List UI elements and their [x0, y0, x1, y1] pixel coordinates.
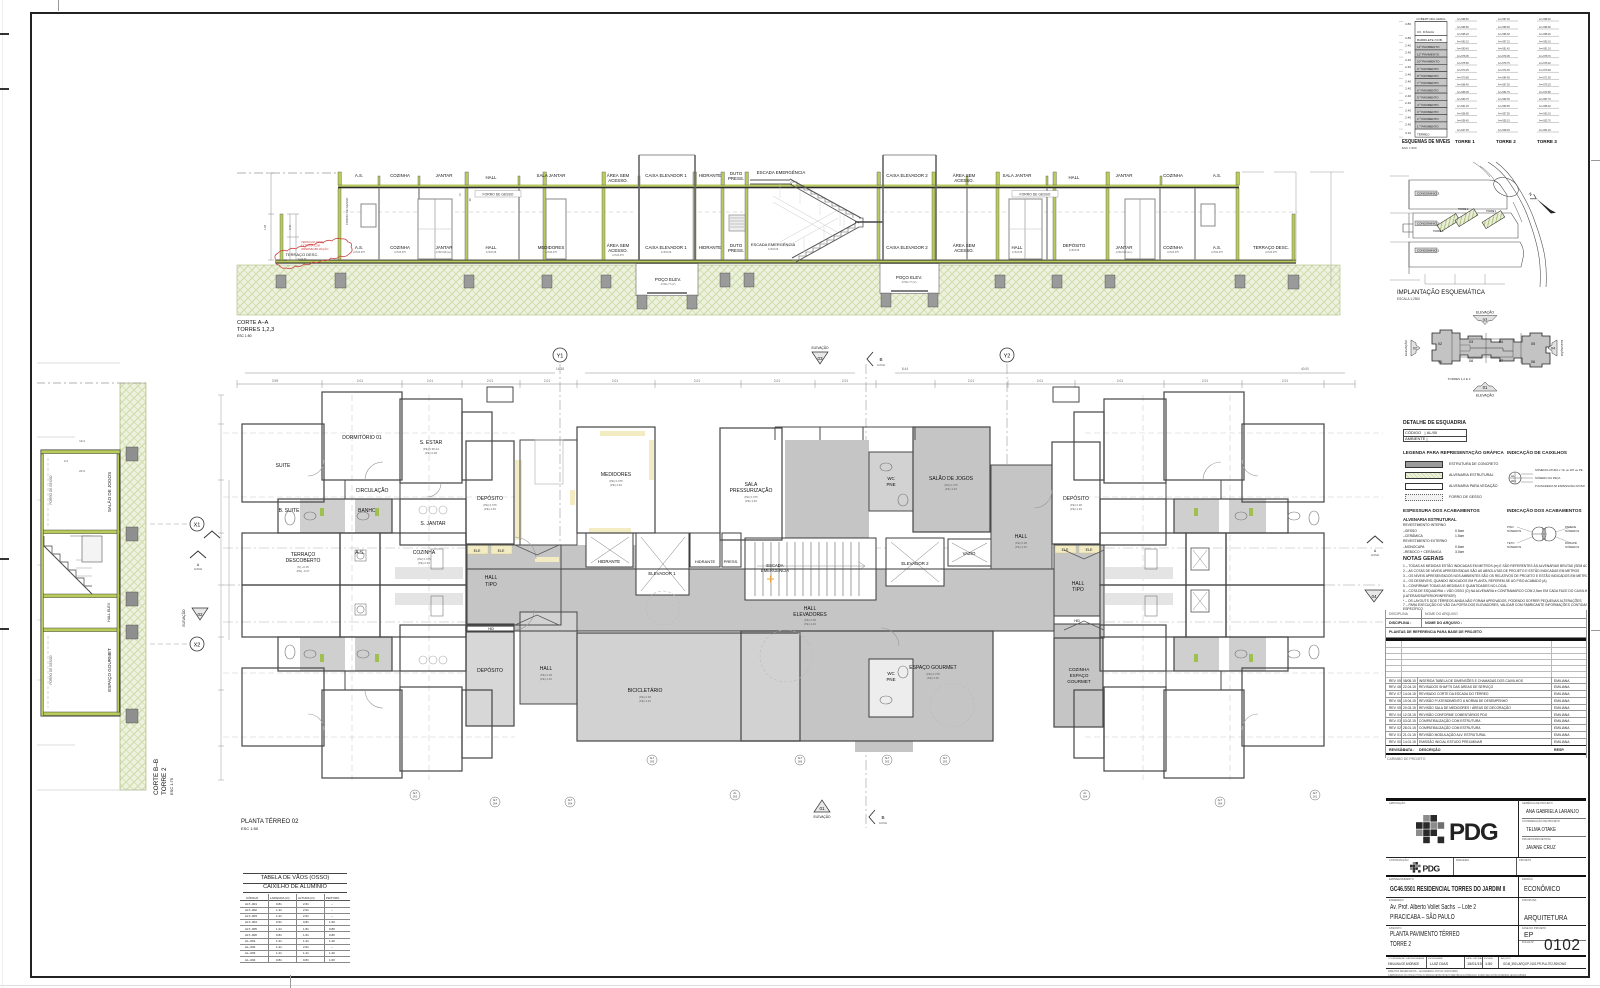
svg-text:DORMITÓRIO 01: DORMITÓRIO 01 — [342, 434, 382, 441]
svg-text:1.98: 1.98 — [263, 224, 267, 230]
svg-text:ACESSO.: ACESSO. — [608, 248, 628, 253]
svg-text:COZINHA: COZINHA — [413, 550, 436, 556]
svg-text:ACIMA: ACIMA — [1371, 553, 1379, 557]
svg-text:ESPAÇO GOURMET: ESPAÇO GOURMET — [107, 648, 112, 692]
svg-text:COZINHA: COZINHA — [1069, 667, 1091, 672]
svg-text:A=34.60: A=34.60 — [298, 258, 308, 261]
svg-text:AL: AL — [1511, 474, 1515, 478]
svg-text:A=+591.45: A=+591.45 — [1498, 48, 1510, 51]
svg-text:A=+561.25: A=+561.25 — [1457, 105, 1469, 108]
svg-text:TORRE 2: TORRE 2 — [1458, 208, 1469, 211]
svg-text:006: 006 — [798, 759, 803, 763]
svg-text:A=+593.10: A=+593.10 — [1539, 40, 1551, 43]
svg-text:02: 02 — [1438, 342, 1442, 346]
svg-text:A=+557.55: A=+557.55 — [1498, 112, 1510, 115]
svg-text:01: 01 — [1483, 385, 1488, 390]
svg-text:A=+566.05: A=+566.05 — [1457, 91, 1469, 94]
svg-text:6 º PAVIMENTO: 6 º PAVIMENTO — [1417, 88, 1439, 92]
svg-text:03: 03 — [1483, 318, 1488, 323]
svg-text:COZINHA: COZINHA — [390, 245, 410, 250]
svg-text:.38: .38 — [468, 198, 472, 202]
svg-text:5 º PAVIMENTO: 5 º PAVIMENTO — [1417, 96, 1439, 100]
svg-text:04: 04 — [1499, 340, 1503, 344]
svg-text:S. ESTAR: S. ESTAR — [420, 440, 443, 446]
svg-text:MEDIDORES: MEDIDORES — [601, 472, 632, 478]
svg-text:TORRE 2: TORRE 2 — [1496, 139, 1516, 144]
svg-text:A=543.075: A=543.075 — [612, 254, 624, 257]
svg-text:CX. D'ÁGUA: CX. D'ÁGUA — [1417, 30, 1434, 34]
svg-text:ELEVAÇÃO: ELEVAÇÃO — [814, 814, 831, 819]
svg-text:2.01: 2.01 — [1202, 379, 1208, 383]
svg-text:ACESSO.: ACESSO. — [954, 248, 974, 253]
svg-text:AL: AL — [733, 791, 737, 795]
svg-text:NÚMEROS: NÚMEROS — [1507, 528, 1521, 533]
svg-text:HALL ELEV.: HALL ELEV. — [107, 602, 111, 622]
svg-text:COZINHA: COZINHA — [390, 173, 410, 178]
svg-text:GOURMET: GOURMET — [1067, 679, 1091, 684]
svg-text:PLANTA TÉRREO 02: PLANTA TÉRREO 02 — [241, 818, 299, 825]
svg-text:PRESS.: PRESS. — [724, 559, 739, 564]
svg-text:A=+567.70: A=+567.70 — [1539, 98, 1551, 101]
svg-text:A=+595.30: A=+595.30 — [1498, 33, 1510, 36]
svg-text:A=+584.95: A=+584.95 — [1498, 76, 1510, 79]
svg-text:001: 001 — [1313, 794, 1318, 798]
svg-text:A=541.77 (a*): A=541.77 (a*) — [661, 283, 676, 286]
svg-text:DEPÓSITO: DEPÓSITO — [1063, 243, 1086, 248]
svg-text:001: 001 — [1511, 479, 1516, 483]
svg-text:ACIMA: ACIMA — [879, 821, 887, 825]
svg-text:2.40: 2.40 — [1405, 65, 1411, 69]
svg-text:TORRES 1,2,3: TORRES 1,2,3 — [237, 327, 274, 333]
svg-text:ESPAÇO GOURMET: ESPAÇO GOURMET — [909, 665, 956, 671]
svg-text:04: 04 — [1371, 594, 1377, 599]
svg-text:ELEVAÇÃO: ELEVAÇÃO — [1403, 339, 1408, 356]
svg-text:A=+564.75: A=+564.75 — [1498, 91, 1510, 94]
svg-text:0.2: 0.2 — [64, 459, 69, 463]
svg-text:A=+576.75: A=+576.75 — [1498, 62, 1510, 65]
svg-text:NÚMEROS: NÚMEROS — [1565, 528, 1579, 533]
svg-text:A.S.: A.S. — [1213, 173, 1221, 178]
svg-text:JANTAR: JANTAR — [436, 173, 453, 178]
svg-text:A=+562.35: A=+562.35 — [1498, 98, 1510, 101]
svg-text:CIRCULAÇÃO: CIRCULAÇÃO — [356, 487, 389, 494]
svg-text:ESC 1:75: ESC 1:75 — [169, 777, 174, 795]
svg-text:A=+595.20: A=+595.20 — [1539, 33, 1551, 36]
svg-text:08: 08 — [1469, 359, 1473, 363]
svg-text:ELE: ELE — [474, 549, 481, 553]
svg-text:A=+591.10: A=+591.10 — [1539, 48, 1551, 51]
svg-text:004: 004 — [493, 801, 498, 805]
svg-text:(PE) 4.46: (PE) 4.46 — [639, 699, 651, 703]
svg-text:A.S.: A.S. — [355, 173, 363, 178]
svg-text:A: A — [197, 563, 200, 567]
svg-text:(PE) 4.46: (PE) 4.46 — [804, 622, 816, 626]
svg-text:A=+596.80: A=+596.80 — [1457, 26, 1469, 29]
svg-text:003: 003 — [733, 794, 738, 798]
svg-text:001: 001 — [413, 794, 418, 798]
svg-text:A=+567.35: A=+567.35 — [1498, 84, 1510, 87]
svg-text:HIDRANTE: HIDRANTE — [699, 245, 722, 250]
svg-text:3 º PAVIMENTO: 3 º PAVIMENTO — [1417, 110, 1439, 114]
svg-text:ELEVAÇÃO: ELEVAÇÃO — [181, 609, 186, 626]
svg-text:EMERGENCIA: EMERGENCIA — [761, 568, 789, 573]
svg-text:1 º PAVIMENTO: 1 º PAVIMENTO — [1417, 124, 1439, 128]
svg-text:HID: HID — [1074, 619, 1080, 623]
svg-text:HALL: HALL — [485, 575, 498, 581]
svg-text:(PE) 4.46: (PE) 4.46 — [1015, 545, 1027, 549]
svg-text:TORRE 3: TORRE 3 — [1433, 230, 1444, 233]
svg-text:PRESSURIZAÇÃO: PRESSURIZAÇÃO — [730, 487, 773, 494]
svg-text:POÇO ELEV.: POÇO ELEV. — [655, 277, 681, 282]
svg-text:ACIMA: ACIMA — [194, 567, 202, 571]
svg-text:ALT: ALT — [885, 756, 890, 760]
svg-text:19.4: 19.4 — [79, 439, 85, 443]
svg-text:A=+597.30: A=+597.30 — [1498, 18, 1510, 21]
svg-text:2.01: 2.01 — [357, 379, 363, 383]
svg-text:DEPÓSITO: DEPÓSITO — [1063, 495, 1089, 502]
svg-text:2.40: 2.40 — [1405, 72, 1411, 76]
svg-text:A=541.77 (a*): A=541.77 (a*) — [902, 281, 917, 284]
svg-text:07: 07 — [1499, 359, 1503, 363]
svg-text:X1: X1 — [194, 523, 201, 529]
svg-text:HALL: HALL — [486, 245, 498, 250]
svg-text:A: A — [1374, 549, 1377, 553]
svg-text:DESCOBERTO: DESCOBERTO — [286, 558, 321, 564]
svg-text:COBERTURA GERAL: COBERTURA GERAL — [1416, 17, 1446, 21]
svg-text:CORTE A–A: CORTE A–A — [237, 320, 269, 326]
svg-text:PNE: PNE — [886, 482, 895, 487]
svg-text:MEDIDORES: MEDIDORES — [538, 245, 565, 250]
svg-text:P/JANADEIRA 50 ESPESSURA DO B: P/JANADEIRA 50 ESPESSURA DO BATENTE — [1535, 484, 1585, 488]
svg-text:ESPAÇO: ESPAÇO — [1070, 673, 1089, 678]
svg-text:10º PAVIMENTO: 10º PAVIMENTO — [1417, 60, 1440, 64]
svg-text:TÉRREO: TÉRREO — [1417, 131, 1430, 136]
svg-text:A=543.075: A=543.075 — [353, 251, 365, 254]
svg-text:02: 02 — [197, 612, 203, 617]
svg-text:EXTERNA COM: EXTERNA COM — [301, 243, 320, 247]
svg-text:A=+571.50: A=+571.50 — [1539, 76, 1551, 79]
svg-text:04: 04 — [1551, 347, 1555, 351]
svg-text:WC: WC — [887, 476, 894, 481]
svg-text:A=+579.05: A=+579.05 — [1498, 55, 1510, 58]
svg-text:JANTAR: JANTAR — [436, 245, 453, 250]
svg-text:BICICLETÁRIO: BICICLETÁRIO — [628, 687, 663, 694]
svg-text:A=543.08 (a.p.): A=543.08 (a.p.) — [436, 251, 453, 254]
svg-text:2.40: 2.40 — [1405, 80, 1411, 84]
svg-text:TIPO: TIPO — [1072, 587, 1084, 593]
svg-text:A=+598.60: A=+598.60 — [1457, 18, 1469, 21]
svg-text:CAIXA ELEVADOR 2: CAIXA ELEVADOR 2 — [886, 245, 928, 250]
svg-text:(PE) 4.46: (PE) 4.46 — [945, 487, 957, 491]
svg-text:A=+597.15: A=+597.15 — [1498, 40, 1510, 43]
svg-text:2.01: 2.01 — [1117, 379, 1123, 383]
svg-text:A=+548.45: A=+548.45 — [1498, 129, 1510, 132]
svg-text:SALÃO DE JOGOS: SALÃO DE JOGOS — [929, 475, 974, 482]
svg-text:HIDRANTE: HIDRANTE — [695, 559, 716, 564]
svg-text:CONDOMINIO 2: CONDOMINIO 2 — [1417, 222, 1440, 226]
svg-text:A=543.075: A=543.075 — [1167, 251, 1179, 254]
svg-text:A=+578.70: A=+578.70 — [1539, 55, 1551, 58]
svg-text:A=+556.45: A=+556.45 — [1457, 120, 1469, 123]
svg-text:ACIMA: ACIMA — [877, 363, 885, 367]
svg-text:3.99: 3.99 — [272, 379, 278, 383]
svg-text:X2: X2 — [194, 643, 201, 649]
svg-text:BARRILETE /COB.: BARRILETE /COB. — [1417, 38, 1443, 42]
svg-text:A=+563.75: A=+563.75 — [1457, 98, 1469, 101]
svg-text:PNE: PNE — [886, 677, 895, 682]
svg-text:A=543.08: A=543.08 — [1069, 249, 1080, 252]
svg-text:11º PAVIMENTO: 11º PAVIMENTO — [1417, 52, 1440, 56]
svg-text:WC: WC — [887, 671, 894, 676]
svg-text:HALL: HALL — [1069, 175, 1081, 180]
svg-text:DEPÓSITO: DEPÓSITO — [477, 495, 503, 502]
svg-text:(PE) 4.46: (PE) 4.46 — [610, 483, 622, 487]
svg-text:03: 03 — [817, 356, 823, 361]
svg-text:SUITE: SUITE — [276, 463, 291, 469]
svg-text:2 º PAVIMENTO: 2 º PAVIMENTO — [1417, 117, 1439, 121]
svg-text:NOMENCLATURA v. NL ou WX ou P: NOMENCLATURA v. NL ou WX ou PE — [1535, 468, 1583, 472]
svg-text:SALA JANTAR: SALA JANTAR — [537, 173, 566, 178]
svg-text:B: B — [879, 357, 882, 362]
svg-text:A=+572.80: A=+572.80 — [1539, 91, 1551, 94]
svg-text:A=543.075: A=543.075 — [1211, 251, 1223, 254]
svg-text:(PE) 4.46: (PE) 4.46 — [540, 677, 552, 681]
svg-text:2.01: 2.01 — [427, 379, 433, 383]
svg-text:FORRO DE GESSO: FORRO DE GESSO — [49, 475, 53, 505]
svg-text:2.01: 2.01 — [1037, 379, 1043, 383]
svg-text:Y1: Y1 — [557, 354, 564, 360]
svg-text:A=+570.85: A=+570.85 — [1457, 76, 1469, 79]
svg-text:A.S.: A.S. — [1213, 245, 1221, 250]
svg-text:NÚMERO DA PEÇA: NÚMERO DA PEÇA — [1535, 475, 1560, 480]
svg-text:2.40: 2.40 — [1405, 44, 1411, 48]
svg-text:2.40: 2.40 — [1405, 108, 1411, 112]
svg-text:A=+573.25: A=+573.25 — [1457, 69, 1469, 72]
svg-text:ELEVADOR 1: ELEVADOR 1 — [648, 571, 676, 576]
svg-text:PRESS.: PRESS. — [728, 176, 744, 181]
svg-text:ACESSO.: ACESSO. — [954, 178, 974, 183]
svg-text:HALL: HALL — [540, 666, 553, 672]
svg-text:02: 02 — [1413, 347, 1417, 351]
svg-text:7 º PAVIMENTO: 7 º PAVIMENTO — [1417, 81, 1439, 85]
svg-text:(PE) 4.46: (PE) 4.46 — [927, 676, 939, 680]
svg-text:2.40: 2.40 — [1405, 87, 1411, 91]
svg-text:004: 004 — [1083, 794, 1088, 798]
svg-text:A=543.075: A=543.075 — [545, 251, 557, 254]
svg-text:A=+573.90: A=+573.90 — [1539, 69, 1551, 72]
svg-text:IMPLANTAÇÃO ESQUEMÁTICA: IMPLANTAÇÃO ESQUEMÁTICA — [1397, 289, 1485, 296]
svg-text:(PE) 4.46: (PE) 4.46 — [1070, 507, 1082, 511]
svg-text:TORRE 2: TORRE 2 — [161, 767, 168, 795]
svg-text:01: 01 — [819, 806, 825, 811]
svg-text:ALT: ALT — [1313, 791, 1318, 795]
svg-text:8.44: 8.44 — [902, 367, 908, 371]
svg-text:TERRAÇO DESC.: TERRAÇO DESC. — [1253, 245, 1289, 250]
svg-text:2.40: 2.40 — [1405, 101, 1411, 105]
svg-text:(PE) 0.38: (PE) 0.38 — [425, 451, 437, 455]
svg-text:ALT: ALT — [568, 798, 573, 802]
svg-text:NÚMEROS: NÚMEROS — [1565, 544, 1579, 549]
svg-text:JANTAR: JANTAR — [1116, 173, 1133, 178]
svg-text:TORRE 1: TORRE 1 — [1486, 210, 1497, 213]
svg-text:A.S.: A.S. — [355, 245, 363, 250]
svg-text:TERRAÇO DESC.: TERRAÇO DESC. — [286, 252, 319, 257]
svg-text:ESCADA EMERGÊNCIA: ESCADA EMERGÊNCIA — [757, 170, 806, 175]
svg-text:FORRO DE GESSO: FORRO DE GESSO — [483, 192, 514, 196]
svg-text:03: 03 — [1469, 340, 1473, 344]
svg-text:12º PAVIMENTO: 12º PAVIMENTO — [1417, 45, 1440, 49]
svg-text:HALL: HALL — [486, 175, 498, 180]
svg-text:A=+574.35: A=+574.35 — [1498, 69, 1510, 72]
svg-text:ALT: ALT — [493, 798, 498, 802]
svg-text:4 º PAVIMENTO: 4 º PAVIMENTO — [1417, 103, 1439, 107]
svg-text:A=543.08: A=543.08 — [486, 251, 497, 254]
svg-text:ESC 1:500: ESC 1:500 — [1402, 146, 1417, 150]
svg-text:A=+551.40: A=+551.40 — [1539, 129, 1551, 132]
svg-text:POÇO ELEV.: POÇO ELEV. — [896, 275, 922, 280]
svg-text:ALT: ALT — [413, 791, 418, 795]
svg-text:2.01: 2.01 — [968, 379, 974, 383]
svg-text:A=543.08: A=543.08 — [1012, 251, 1023, 254]
svg-text:ESC 1:50: ESC 1:50 — [237, 334, 252, 338]
svg-text:B: B — [881, 815, 884, 820]
svg-text:A=+568.45: A=+568.45 — [1457, 84, 1469, 87]
svg-text:ELEVAÇÃO: ELEVAÇÃO — [1476, 310, 1494, 315]
svg-text:DEPÓSITO: DEPÓSITO — [477, 667, 503, 674]
svg-text:2.01: 2.01 — [612, 379, 618, 383]
svg-text:2.40: 2.40 — [1405, 116, 1411, 120]
svg-text:A=+596.90: A=+596.90 — [1539, 26, 1551, 29]
svg-text:HIDRANTE: HIDRANTE — [598, 559, 621, 564]
svg-text:CAIXA ELEVADOR 2: CAIXA ELEVADOR 2 — [886, 173, 928, 178]
svg-text:2.01: 2.01 — [487, 379, 493, 383]
svg-text:COZINHA: COZINHA — [1163, 245, 1183, 250]
svg-text:FORRO DE GESSO: FORRO DE GESSO — [1020, 192, 1051, 196]
svg-text:A=+575.65: A=+575.65 — [1457, 62, 1469, 65]
svg-text:2.40: 2.40 — [288, 224, 292, 230]
svg-text:ACESSO.: ACESSO. — [608, 178, 628, 183]
svg-text:A=+598.40: A=+598.40 — [1539, 18, 1551, 21]
svg-text:.70: .70 — [458, 193, 462, 197]
svg-text:A=+575.20: A=+575.20 — [1539, 84, 1551, 87]
svg-text:A=+576.40: A=+576.40 — [1539, 62, 1551, 65]
svg-text:CORTE B–B: CORTE B–B — [153, 759, 160, 795]
svg-text:2.01: 2.01 — [774, 379, 780, 383]
svg-text:CONDOMINIO 1: CONDOMINIO 1 — [1417, 249, 1440, 253]
svg-text:COZINHA: COZINHA — [1163, 173, 1183, 178]
svg-text:TORRES 1,2 E 3: TORRES 1,2 E 3 — [1448, 377, 1471, 381]
svg-text:AL: AL — [1083, 791, 1087, 795]
svg-text:9 º PAVIMENTO: 9 º PAVIMENTO — [1417, 67, 1439, 71]
svg-text:VERIFICAR JUNTA: VERIFICAR JUNTA — [301, 240, 324, 244]
svg-text:2.80: 2.80 — [1405, 36, 1411, 40]
svg-text:ALT: ALT — [943, 756, 948, 760]
svg-text:3.10: 3.10 — [1405, 131, 1411, 135]
svg-text:A=543.08: A=543.08 — [661, 251, 672, 254]
svg-text:FORRO DE GESSO: FORRO DE GESSO — [345, 197, 349, 225]
svg-text:2.01: 2.01 — [544, 379, 550, 383]
svg-text:TORRE 1: TORRE 1 — [1455, 139, 1475, 144]
svg-text:A=+552.70: A=+552.70 — [1539, 120, 1551, 123]
svg-text:05: 05 — [1531, 342, 1535, 346]
svg-text:003: 003 — [943, 759, 948, 763]
svg-text:A=+578.05: A=+578.05 — [1457, 55, 1469, 58]
svg-text:8 º PAVIMENTO: 8 º PAVIMENTO — [1417, 74, 1439, 78]
svg-text:HIDRANTE: HIDRANTE — [699, 173, 722, 178]
svg-text:003: 003 — [885, 759, 890, 763]
svg-text:A=+559.95: A=+559.95 — [1498, 105, 1510, 108]
svg-text:PRESS.: PRESS. — [728, 248, 744, 253]
svg-text:JANTAR: JANTAR — [1116, 245, 1133, 250]
svg-text:A=543.08: A=543.08 — [768, 248, 779, 251]
svg-text:(PE) 4.46: (PE) 4.46 — [745, 499, 757, 503]
svg-text:NÚMEROS: NÚMEROS — [1507, 544, 1521, 549]
svg-text:(PE) -0.07: (PE) -0.07 — [297, 569, 310, 573]
svg-text:S. JANTAR: S. JANTAR — [420, 521, 446, 527]
svg-text:004: 004 — [568, 801, 573, 805]
svg-text:A=+593.15: A=+593.15 — [1457, 40, 1469, 43]
svg-text:2.01: 2.01 — [1282, 379, 1288, 383]
svg-text:06: 06 — [1531, 360, 1535, 364]
svg-text:A=543.075: A=543.075 — [394, 251, 406, 254]
svg-text:ESCALA 1:2500: ESCALA 1:2500 — [1397, 297, 1420, 301]
svg-text:2.40: 2.40 — [1405, 123, 1411, 127]
svg-text:(PE) 4.46: (PE) 4.46 — [484, 507, 496, 511]
svg-text:A=+595.90: A=+595.90 — [1498, 26, 1510, 29]
svg-text:A=+555.15: A=+555.15 — [1498, 120, 1510, 123]
svg-text:4.80: 4.80 — [1405, 22, 1411, 26]
svg-text:ESQUEMAS DE NIVEIS: ESQUEMAS DE NIVEIS — [1402, 139, 1451, 145]
svg-text:Y2: Y2 — [1004, 354, 1011, 360]
svg-text:A=543.075: A=543.075 — [1265, 251, 1277, 254]
svg-text:N: N — [1528, 191, 1533, 197]
svg-text:A=543.08 (a.p.): A=543.08 (a.p.) — [1116, 251, 1133, 254]
svg-text:TIPO: TIPO — [485, 582, 497, 588]
svg-text:ELE: ELE — [1086, 548, 1093, 552]
svg-text:SALÃO DE JOGOS: SALÃO DE JOGOS — [106, 472, 112, 512]
svg-text:A=+563.10: A=+563.10 — [1539, 112, 1551, 115]
svg-text:ELEVAÇÃO: ELEVAÇÃO — [1560, 340, 1565, 357]
svg-text:ELEVAÇÃO: ELEVAÇÃO — [1476, 393, 1494, 398]
svg-text:A=+595.20: A=+595.20 — [1457, 33, 1469, 36]
svg-text:ALT: ALT — [1218, 798, 1223, 802]
svg-text:ESC 1:50: ESC 1:50 — [241, 826, 259, 831]
svg-text:2.01: 2.01 — [694, 379, 700, 383]
svg-text:CAIXA ELEVADOR 1: CAIXA ELEVADOR 1 — [645, 245, 687, 250]
svg-text:2.40: 2.40 — [1405, 51, 1411, 55]
svg-text:ALT: ALT — [798, 756, 803, 760]
svg-text:A=+558.85: A=+558.85 — [1457, 112, 1469, 115]
svg-text:ELEVAÇÃO: ELEVAÇÃO — [812, 345, 829, 350]
svg-text:2.40: 2.40 — [1405, 94, 1411, 98]
svg-text:VAZIO: VAZIO — [963, 551, 976, 556]
svg-text:A=+565.40: A=+565.40 — [1539, 105, 1551, 108]
svg-text:SALA JANTAR: SALA JANTAR — [1003, 173, 1032, 178]
svg-text:ELEVADOR 2: ELEVADOR 2 — [901, 561, 929, 566]
svg-text:A=+547.45: A=+547.45 — [1457, 129, 1469, 132]
svg-text:TORRE 3: TORRE 3 — [1537, 139, 1557, 144]
svg-text:ALT: ALT — [650, 756, 655, 760]
svg-text:01: 01 — [1438, 360, 1442, 364]
svg-text:HALL: HALL — [1012, 245, 1024, 250]
svg-text:005: 005 — [650, 759, 655, 763]
svg-text:40.00: 40.00 — [1301, 367, 1309, 371]
svg-text:(PE) 0.38: (PE) 0.38 — [418, 561, 430, 565]
svg-text:004: 004 — [1218, 801, 1223, 805]
svg-text:2.40: 2.40 — [1405, 58, 1411, 62]
svg-text:HALL: HALL — [1015, 534, 1028, 540]
svg-text:2.01: 2.01 — [842, 379, 848, 383]
